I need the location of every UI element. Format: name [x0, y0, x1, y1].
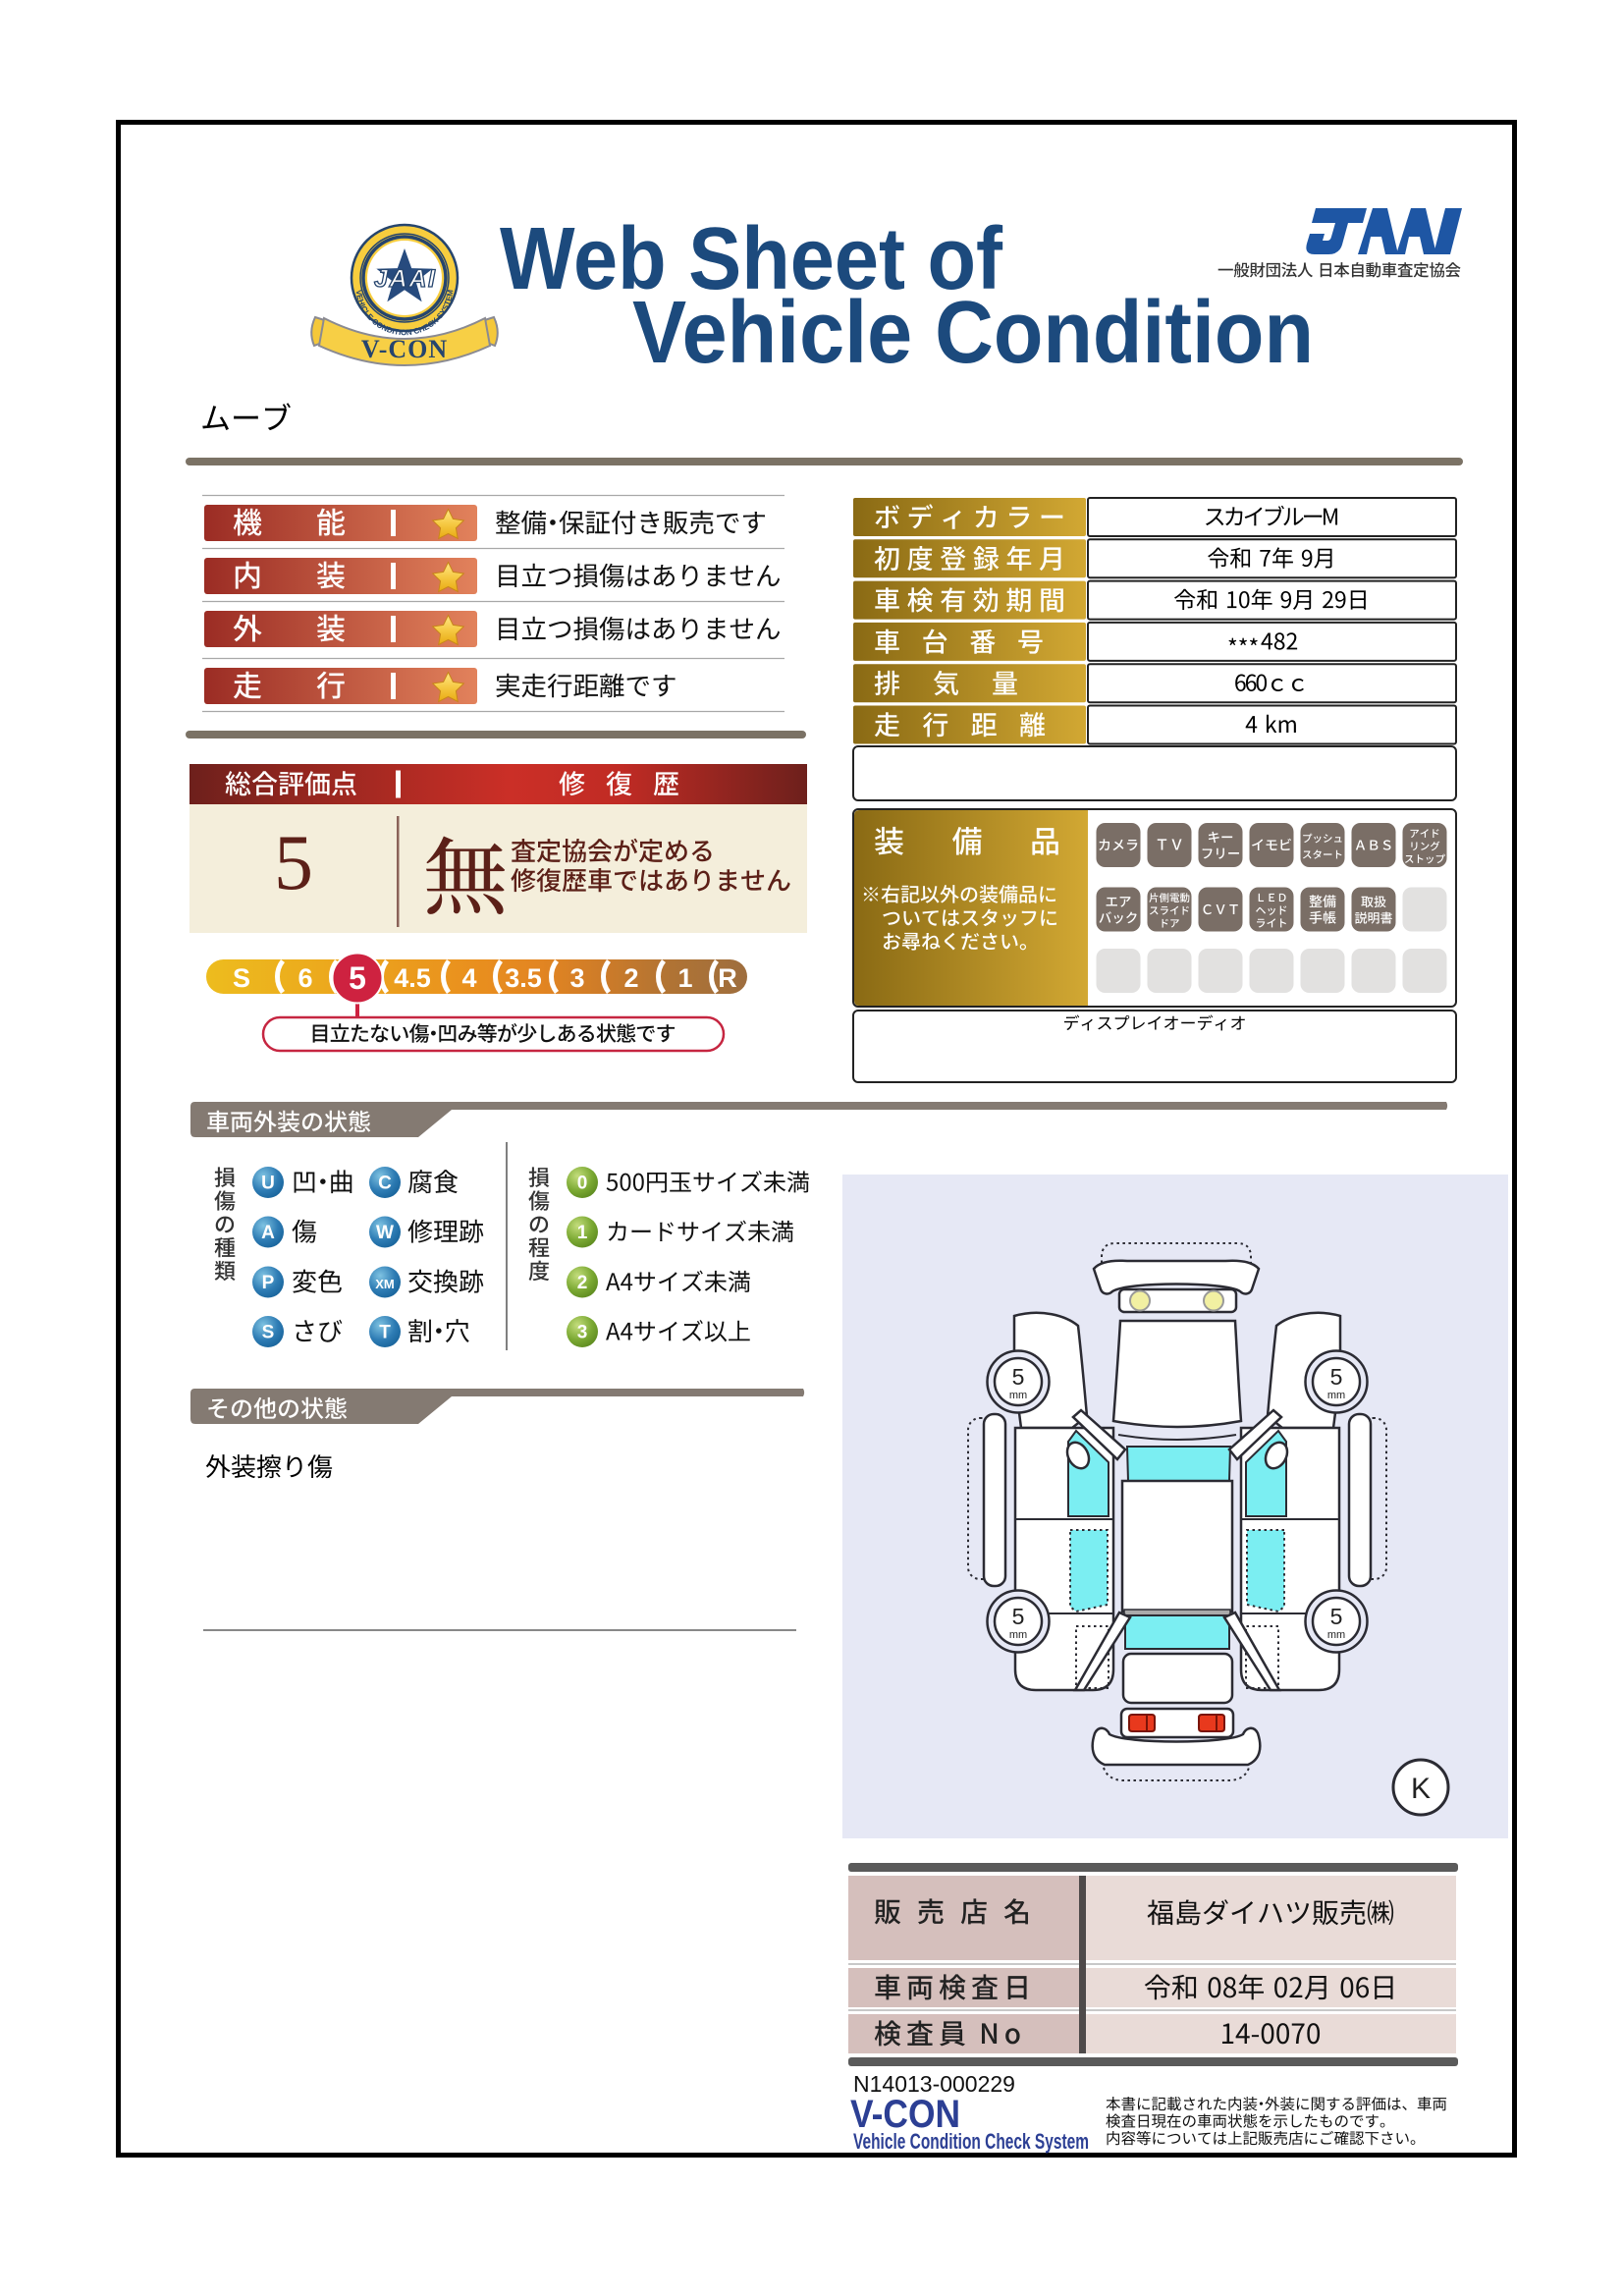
svg-text:P: P — [262, 1273, 275, 1293]
svg-text:R: R — [718, 963, 737, 993]
svg-text:6: 6 — [298, 963, 312, 993]
svg-text:mm: mm — [1009, 1629, 1027, 1641]
svg-text:5: 5 — [1012, 1364, 1025, 1390]
svg-text:2: 2 — [577, 1273, 588, 1293]
svg-text:Vehicle Condition: Vehicle Condition — [632, 284, 1314, 382]
svg-text:S: S — [262, 1323, 275, 1343]
svg-text:4: 4 — [461, 963, 476, 993]
svg-text:W: W — [376, 1223, 394, 1243]
svg-text:T: T — [379, 1323, 391, 1343]
svg-text:2: 2 — [623, 963, 638, 993]
svg-text:0: 0 — [577, 1174, 588, 1194]
svg-text:3.5: 3.5 — [505, 963, 542, 993]
svg-text:A: A — [261, 1223, 275, 1243]
svg-text:5: 5 — [1330, 1604, 1343, 1629]
svg-text:S: S — [233, 963, 250, 993]
svg-text:C: C — [378, 1174, 392, 1194]
svg-text:Vehicle Condition Check System: Vehicle Condition Check System — [853, 2129, 1089, 2154]
svg-text:3: 3 — [569, 963, 584, 993]
svg-text:5: 5 — [274, 820, 313, 906]
svg-text:3: 3 — [577, 1323, 588, 1343]
svg-text:mm: mm — [1009, 1390, 1027, 1401]
svg-text:1: 1 — [577, 1223, 588, 1243]
svg-text:5: 5 — [1330, 1364, 1343, 1390]
svg-text:K: K — [1411, 1773, 1431, 1805]
svg-text:mm: mm — [1327, 1390, 1345, 1401]
svg-text:5: 5 — [1012, 1604, 1025, 1629]
svg-text:XM: XM — [375, 1277, 395, 1291]
svg-text:U: U — [261, 1174, 275, 1194]
svg-text:V-CON: V-CON — [361, 335, 448, 363]
svg-text:5: 5 — [349, 960, 366, 996]
svg-text:4.5: 4.5 — [394, 963, 431, 993]
svg-text:1: 1 — [677, 963, 692, 993]
svg-text:mm: mm — [1327, 1629, 1345, 1641]
